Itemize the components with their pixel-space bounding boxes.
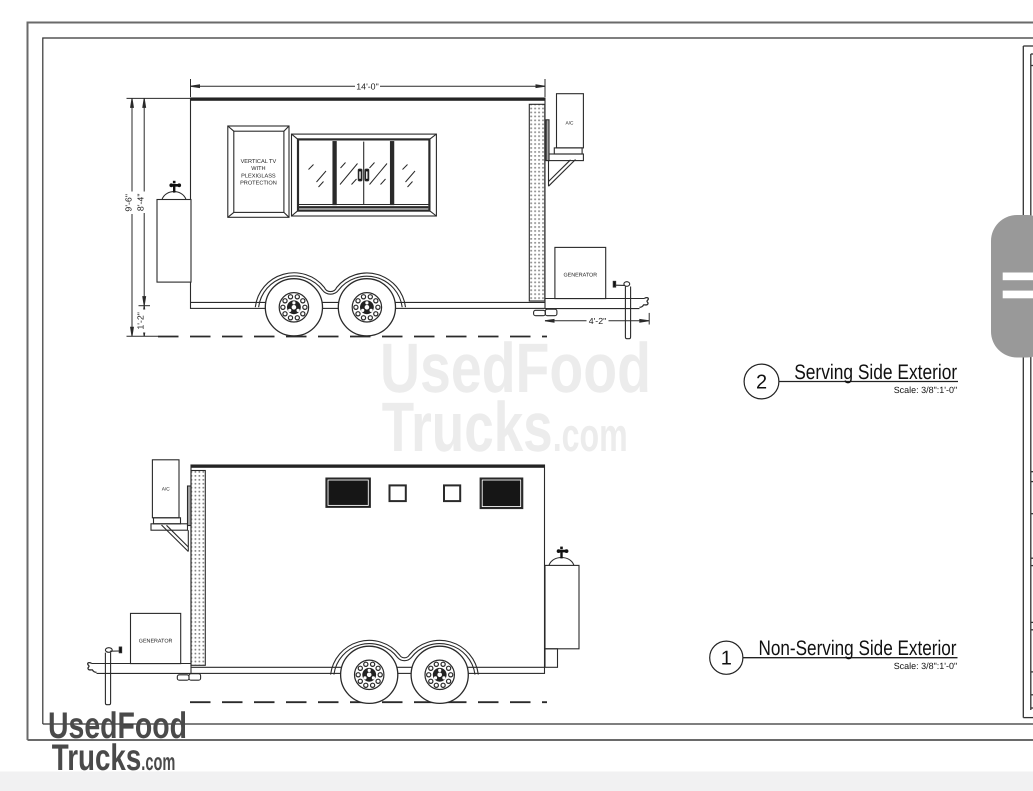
svg-text:Serving Side Exterior: Serving Side Exterior bbox=[794, 361, 957, 384]
svg-text:14'-0": 14'-0" bbox=[356, 81, 378, 91]
svg-text:9'-6": 9'-6" bbox=[124, 194, 134, 212]
svg-text:1: 1 bbox=[721, 648, 732, 670]
svg-text:A/C: A/C bbox=[162, 487, 171, 493]
svg-text:4'-2": 4'-2" bbox=[589, 316, 607, 326]
svg-text:VERTICAL TV: VERTICAL TV bbox=[241, 159, 277, 165]
svg-text:WITH: WITH bbox=[251, 166, 265, 172]
svg-text:2: 2 bbox=[756, 372, 767, 394]
svg-text:GENERATOR: GENERATOR bbox=[139, 638, 173, 644]
svg-text:GENERATOR: GENERATOR bbox=[563, 272, 597, 278]
svg-text:PROTECTION: PROTECTION bbox=[240, 181, 277, 187]
svg-text:Scale: 3/8":1'-0": Scale: 3/8":1'-0" bbox=[894, 385, 958, 395]
svg-text:8'-4": 8'-4" bbox=[136, 194, 146, 212]
svg-text:Scale: 3/8":1'-0": Scale: 3/8":1'-0" bbox=[894, 661, 958, 671]
svg-text:1'-2": 1'-2" bbox=[136, 312, 146, 330]
svg-text:PLEXIGLASS: PLEXIGLASS bbox=[241, 174, 276, 180]
svg-text:A/C: A/C bbox=[566, 121, 575, 127]
svg-text:Non-Serving Side Exterior: Non-Serving Side Exterior bbox=[759, 637, 957, 660]
